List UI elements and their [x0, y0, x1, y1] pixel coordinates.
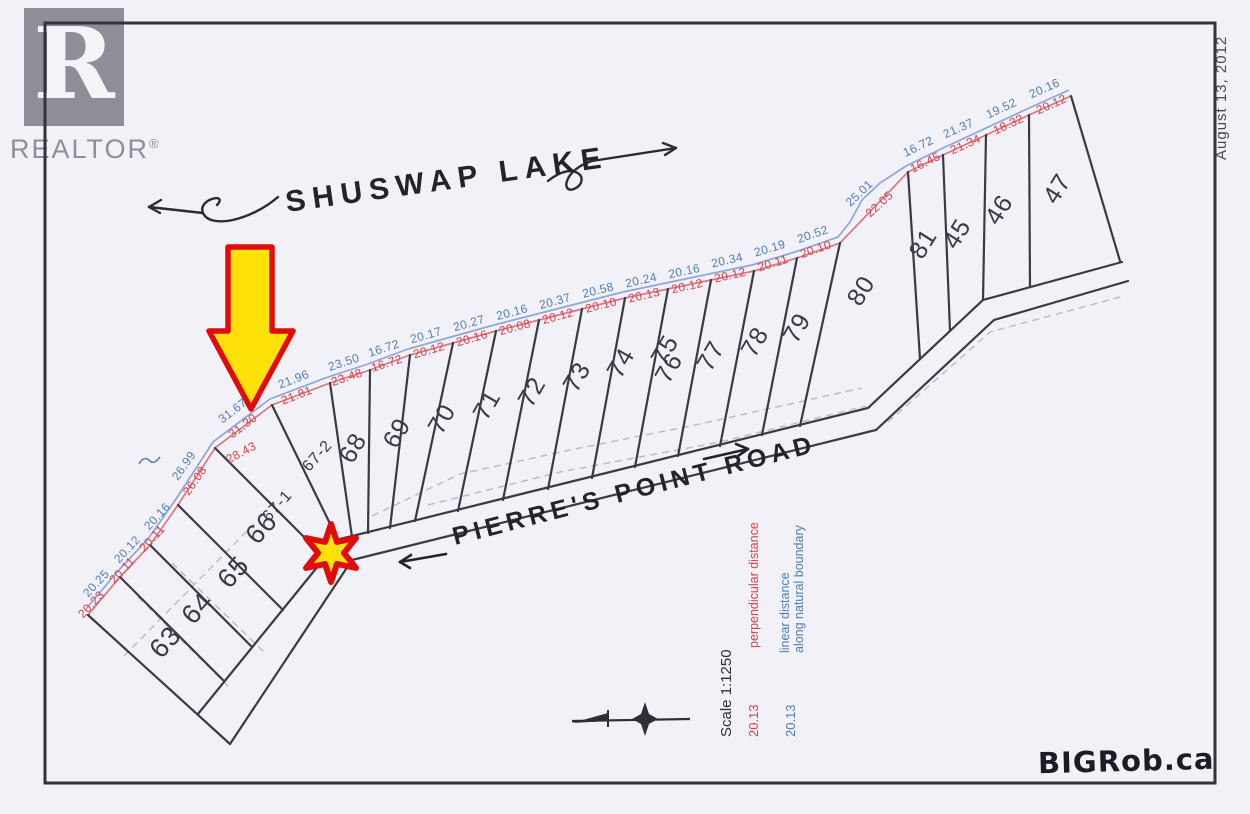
lot-number-74: 74 — [601, 343, 640, 383]
lot47-east-line — [1071, 96, 1120, 261]
north-arrow — [572, 702, 690, 736]
legend-blue-meaning-line2: along natural boundary — [792, 524, 806, 653]
lot-number-67-1: 67-1 — [259, 487, 296, 525]
lot-number-65: 65 — [211, 550, 255, 594]
lot-number-64: 64 — [175, 586, 219, 630]
legend-scale: Scale 1:1250 — [718, 649, 735, 737]
pen-scribble — [139, 457, 160, 464]
lot-number-79: 79 — [777, 308, 816, 348]
lot-number-73: 73 — [557, 357, 596, 397]
legend-blue-meaning-line1: linear distance — [778, 572, 792, 653]
lot-number-71: 71 — [467, 385, 506, 425]
lot-number-70: 70 — [422, 399, 461, 439]
measurement-perpendicular: 28.43 — [224, 439, 259, 466]
legend-red-sample-value: 20.13 — [746, 704, 761, 737]
legend: Scale 1:1250 20.13 perpendicular distanc… — [718, 522, 806, 737]
legend-blue-sample-value: 20.13 — [783, 704, 798, 737]
lot-number-69: 69 — [377, 413, 416, 453]
map-border — [45, 23, 1215, 783]
lot-number-47: 47 — [1037, 169, 1077, 209]
lot-number-68: 68 — [333, 428, 372, 468]
measurement-perpendicular: 20.23 — [75, 588, 107, 621]
lot-number-63: 63 — [143, 620, 187, 664]
lot-number-80: 80 — [841, 271, 881, 311]
lake-arrow-left — [149, 197, 278, 221]
lot-number-45: 45 — [937, 214, 977, 254]
lot-number-72: 72 — [512, 372, 551, 412]
lake-label: SHUSWAP LAKE — [283, 141, 610, 219]
measurement-perpendicular: 20.11 — [106, 554, 137, 586]
lot-number-labels: 6364656667-167-2686970717273747576777879… — [143, 169, 1077, 664]
lot-number-67-2: 67-2 — [299, 437, 336, 475]
lot-number-77: 77 — [691, 336, 730, 376]
road-arrow-left — [400, 554, 446, 568]
plat-map-canvas: SHUSWAP LAKE — [0, 0, 1250, 814]
legend-red-meaning: perpendicular distance — [747, 522, 761, 648]
lot-number-78: 78 — [735, 322, 774, 362]
lot-number-81: 81 — [903, 224, 943, 264]
